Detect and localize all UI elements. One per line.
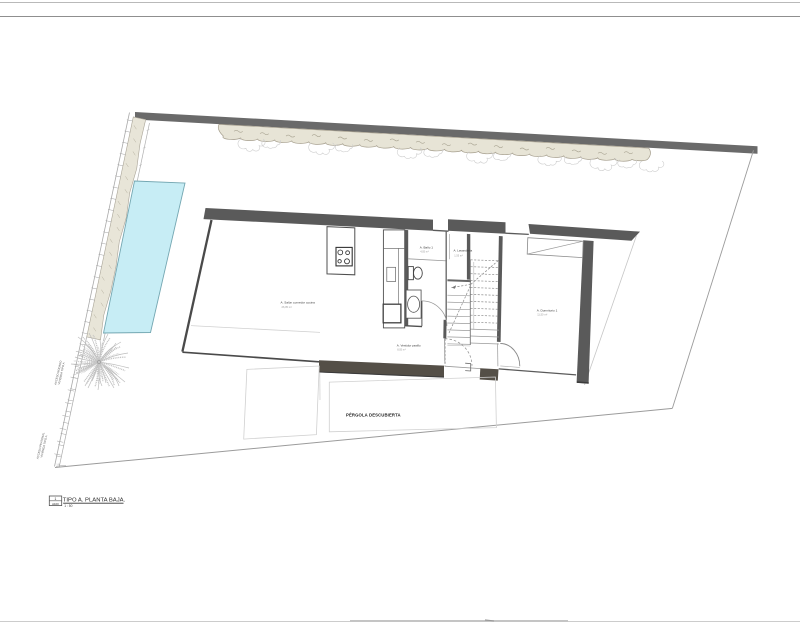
svg-text:8,05 m²: 8,05 m² [397,348,406,351]
svg-text:4,05 m²: 4,05 m² [420,250,429,253]
svg-text:A100: A100 [52,502,59,506]
svg-text:26,05 m²: 26,05 m² [282,305,292,309]
svg-text:PÉRGOLA DESCUBIERTA: PÉRGOLA DESCUBIERTA [346,413,401,418]
svg-text:1 : 50: 1 : 50 [64,504,72,508]
svg-text:1: 1 [55,497,57,501]
svg-text:A. Dormitorio 1: A. Dormitorio 1 [537,308,558,312]
svg-text:A. Lavandería: A. Lavandería [454,248,473,252]
svg-text:1,55 m²: 1,55 m² [454,255,463,258]
svg-text:1,50: 1,50 [57,464,61,466]
svg-text:A. Baño 1: A. Baño 1 [420,245,434,249]
svg-text:A. Vestidor pasillo: A. Vestidor pasillo [397,343,421,347]
svg-text:11,50 m²: 11,50 m² [537,313,547,317]
svg-text:A. Salón comedor cocina: A. Salón comedor cocina [281,300,316,304]
svg-text:TIPO A. PLANTA BAJA.: TIPO A. PLANTA BAJA. [63,498,126,504]
